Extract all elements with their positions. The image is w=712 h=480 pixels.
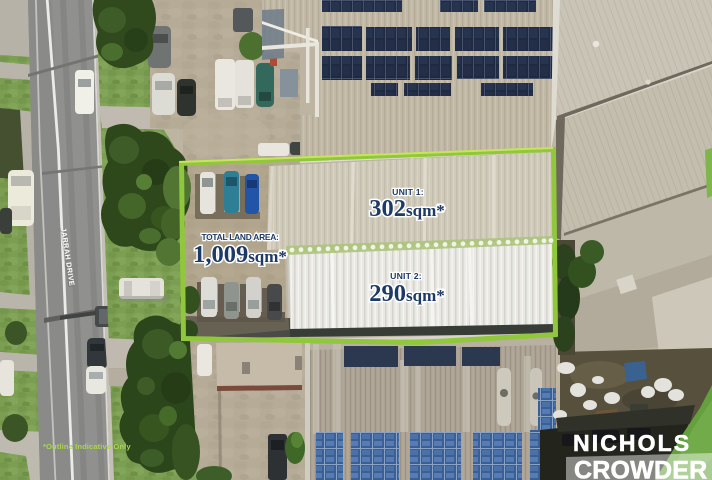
svg-text:CROWDER: CROWDER — [574, 457, 707, 480]
svg-text:*Outline Indicative Only: *Outline Indicative Only — [43, 442, 131, 451]
svg-text:NICHOLS: NICHOLS — [573, 430, 691, 456]
